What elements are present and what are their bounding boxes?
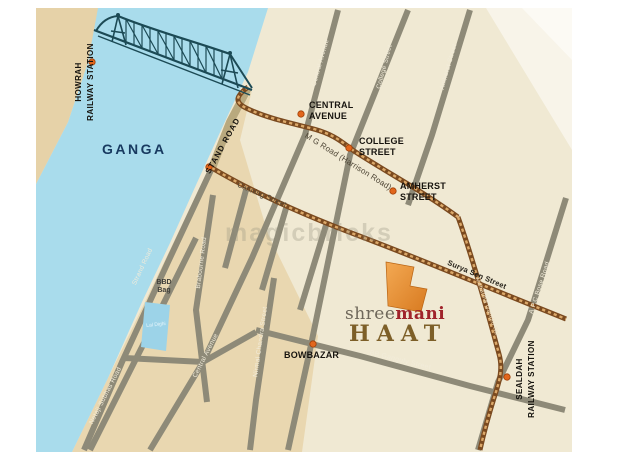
howrah-station-label: HOWRAH RAILWAY STATION bbox=[73, 27, 97, 137]
howrah-line1: HOWRAH bbox=[74, 62, 83, 101]
bbd-line2: Bag bbox=[157, 287, 170, 294]
college-street-line2: STREET bbox=[359, 147, 396, 157]
watermark-text: magicbricks bbox=[225, 218, 393, 248]
location-map: magicbricks HOWRAH RAILWAY STATION SEALD… bbox=[0, 0, 626, 470]
sealdah-line1: SEALDAH bbox=[515, 358, 524, 399]
bowbazar-marker bbox=[310, 341, 316, 347]
college-street-marker bbox=[346, 145, 352, 151]
ganga-label: GANGA bbox=[102, 141, 167, 158]
central-avenue-line2: AVENUE bbox=[309, 111, 347, 121]
bowbazar-label: BOWBAZAR bbox=[284, 350, 339, 361]
sealdah-line2: RAILWAY STATION bbox=[527, 340, 536, 418]
central-avenue-marker bbox=[298, 111, 304, 117]
howrah-line2: RAILWAY STATION bbox=[86, 43, 95, 121]
bbd-line1: BBD bbox=[156, 279, 171, 286]
central-avenue-label: CENTRAL AVENUE bbox=[309, 100, 353, 122]
college-street-label: COLLEGE STREET bbox=[359, 136, 404, 158]
sealdah-station-label: SEALDAH RAILWAY STATION bbox=[514, 331, 538, 427]
amherst-street-line1: AMHERST bbox=[400, 181, 446, 191]
bbd-bag-label: BBD Bag bbox=[152, 279, 176, 295]
central-avenue-line1: CENTRAL bbox=[309, 100, 353, 110]
sealdah-station-marker bbox=[504, 374, 510, 380]
college-street-line1: COLLEGE bbox=[359, 136, 404, 146]
haat-logo: HAAT bbox=[349, 321, 447, 347]
